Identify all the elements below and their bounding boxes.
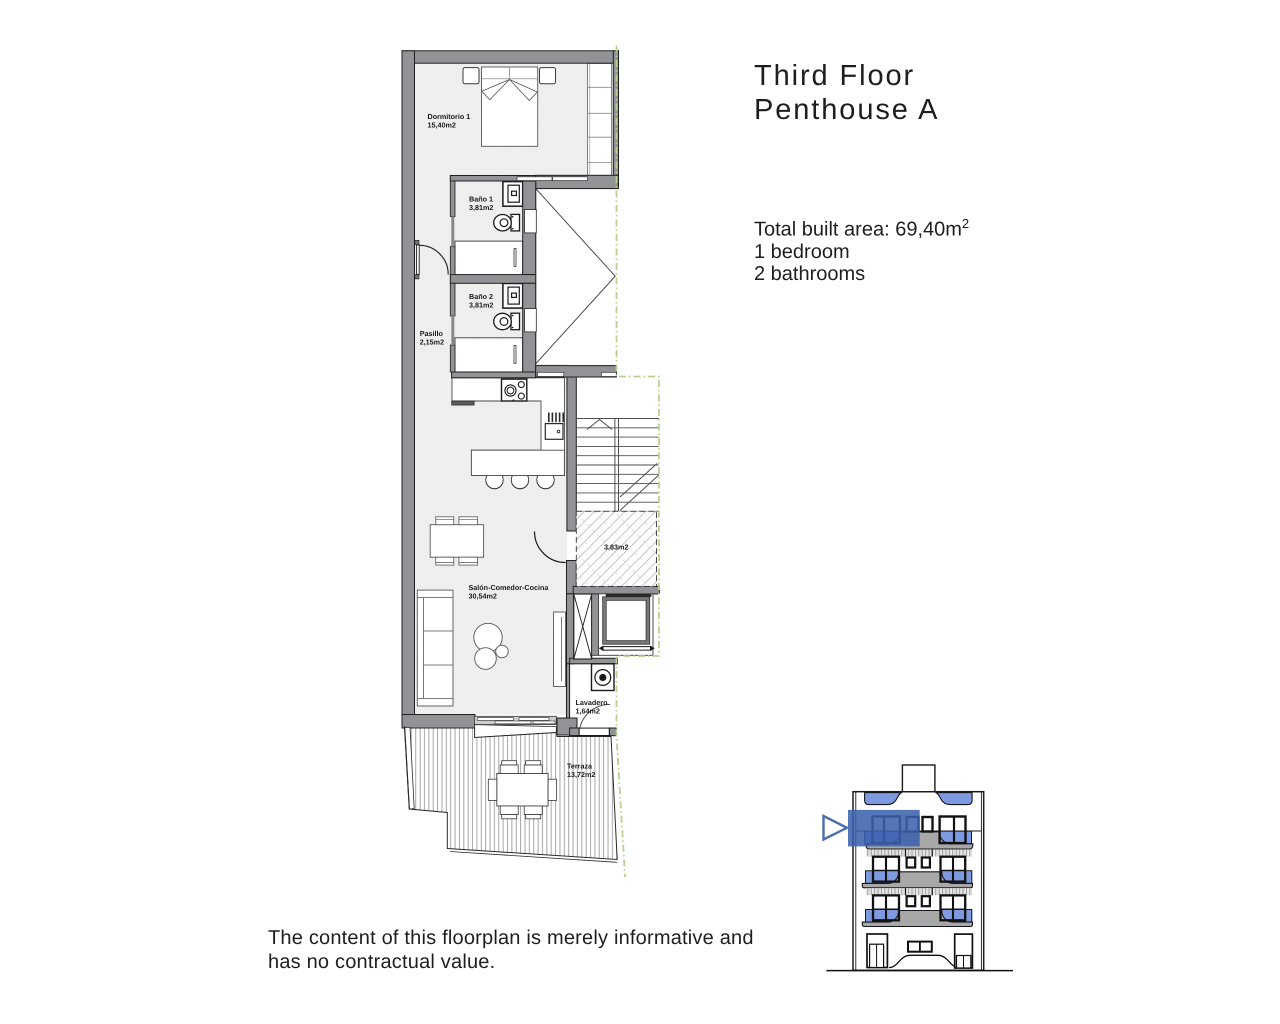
svg-text:13,72m2: 13,72m2 xyxy=(567,770,595,779)
svg-text:3,81m2: 3,81m2 xyxy=(469,203,493,212)
svg-text:2,15m2: 2,15m2 xyxy=(420,338,444,347)
svg-text:30,54m2: 30,54m2 xyxy=(469,592,497,601)
svg-text:15,40m2: 15,40m2 xyxy=(428,121,456,130)
svg-text:3,81m2: 3,81m2 xyxy=(469,301,493,310)
svg-text:1,64m2: 1,64m2 xyxy=(576,707,600,716)
svg-text:3,83m2: 3,83m2 xyxy=(604,543,628,552)
